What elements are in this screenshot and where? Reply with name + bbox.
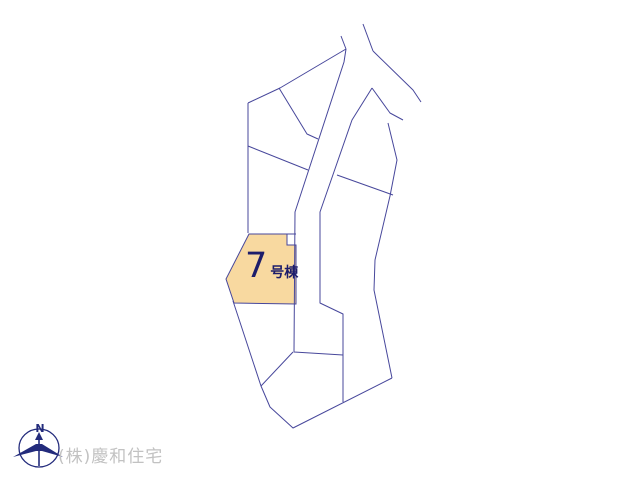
lot-7-label: 7 号棟 — [245, 249, 298, 284]
parcel-boundary-line — [337, 175, 393, 195]
plot-map-svg — [0, 0, 640, 480]
parcel-boundary-line — [320, 88, 372, 402]
parcel-boundary-line — [233, 301, 392, 428]
parcel-boundary-line — [341, 36, 346, 49]
parcel-boundary-line — [248, 146, 308, 170]
parcel-boundary-line — [279, 88, 318, 139]
plot-map-page: 7 号棟 N (株)慶和住宅 — [0, 0, 640, 480]
parcel-boundary-line — [261, 352, 293, 386]
parcel-boundary-line — [372, 88, 403, 120]
parcel-boundary-line — [374, 123, 397, 378]
parcel-boundary-line — [373, 51, 421, 102]
company-credit: (株)慶和住宅 — [58, 447, 163, 467]
lot-suffix: 号棟 — [270, 262, 298, 282]
compass-north-letter: N — [35, 422, 44, 435]
parcel-boundary-line — [363, 24, 373, 51]
parcel-boundary-line — [294, 49, 346, 355]
lot-number: 7 — [245, 249, 267, 284]
parcel-boundary-line — [248, 49, 346, 103]
